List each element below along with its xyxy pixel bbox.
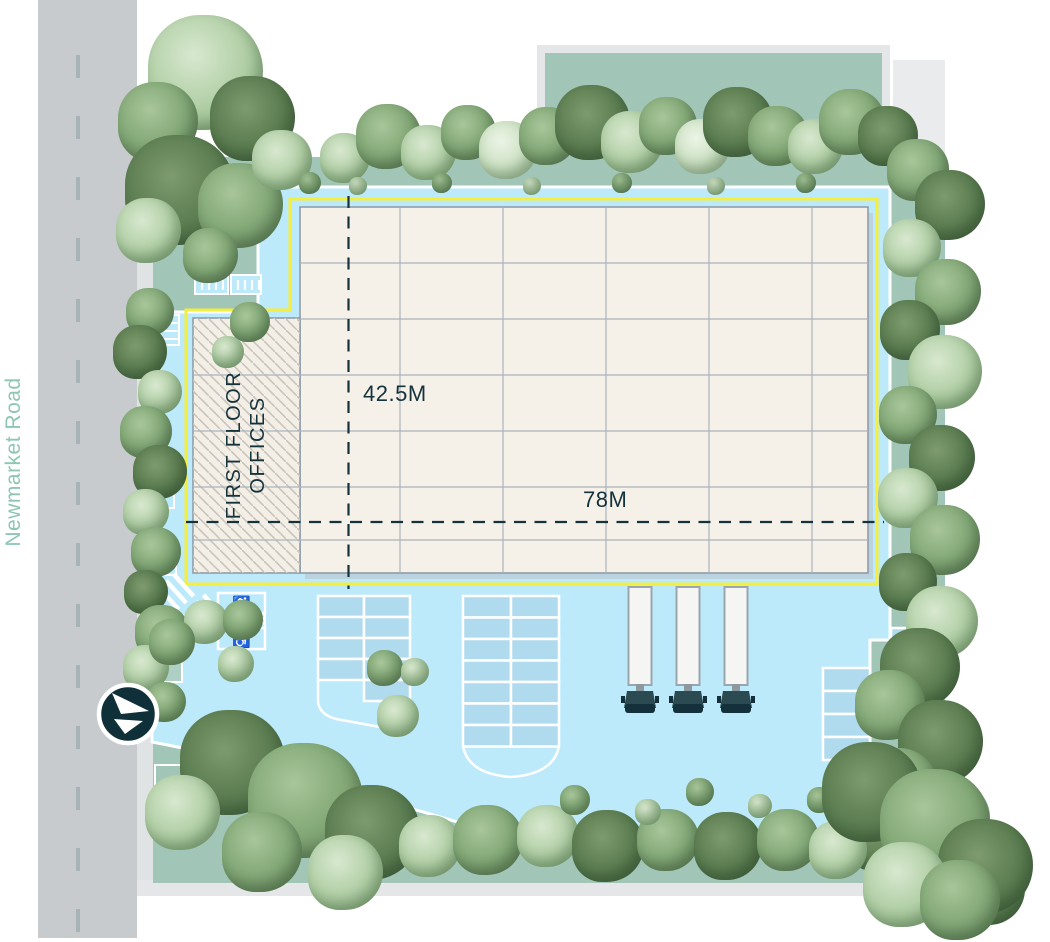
road-name-label: Newmarket Road xyxy=(2,377,26,546)
site-plan-drawing: ♿ ♿ xyxy=(0,0,1050,942)
first-floor-offices-label: FIRST FLOOR OFFICES xyxy=(222,371,270,519)
wheelchair-icon: ♿ xyxy=(232,595,251,613)
width-dimension-label: 78M xyxy=(583,487,627,513)
hgv-trucks xyxy=(621,587,755,713)
ffo-line2: OFFICES xyxy=(246,371,270,519)
depth-dimension-label: 42.5M xyxy=(363,381,427,407)
wheelchair-icon: ♿ xyxy=(232,631,251,649)
ffo-line1: FIRST FLOOR xyxy=(222,371,246,519)
north-arrow-icon xyxy=(95,681,161,747)
cycle-stands xyxy=(195,275,261,294)
substation xyxy=(237,752,293,796)
site-plan: { "road": { "name": "Newmarket Road", "l… xyxy=(0,0,1050,942)
